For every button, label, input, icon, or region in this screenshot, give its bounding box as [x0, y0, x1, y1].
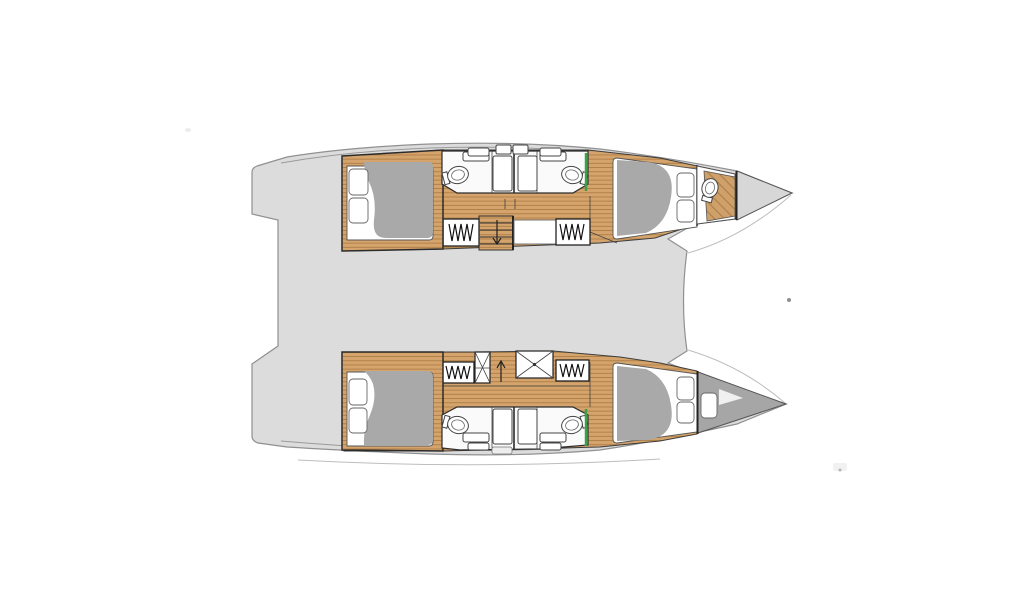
berth-pillow: [701, 393, 717, 418]
vanity-locker: [514, 220, 557, 244]
catamaran-floorplan: [0, 0, 1024, 600]
pillow: [349, 198, 368, 223]
forepeak-head: [697, 166, 735, 224]
pillow: [677, 377, 694, 400]
bathrooms: [441, 145, 588, 193]
pillow: [677, 402, 694, 423]
sink-counter: [463, 433, 489, 442]
bow-locker: [737, 171, 792, 220]
hull-window: [540, 443, 561, 450]
forward-cabin: [613, 363, 697, 443]
pillow: [677, 173, 694, 197]
duvet: [364, 371, 433, 445]
transom-step: [492, 447, 512, 454]
deck-hatch-large: [516, 351, 553, 378]
lower-hull: [342, 351, 786, 454]
duvet: [364, 162, 433, 238]
pillow: [349, 408, 367, 433]
aft-cabin: [342, 352, 443, 451]
aft-cabin: [342, 150, 443, 251]
hull-window: [468, 148, 489, 156]
scan-smudge: [833, 463, 847, 472]
waterline-curve: [298, 459, 660, 465]
shower-stall: [493, 156, 512, 191]
hull-window: [540, 148, 561, 156]
shower-stall: [518, 156, 537, 191]
scan-smudge: [185, 128, 191, 132]
roof-hatch: [496, 145, 511, 154]
forepeak-berth: [698, 371, 787, 434]
deck-hatch-narrow: [475, 352, 490, 383]
forward-cabin: [613, 158, 697, 239]
wardrobe-forward: [556, 360, 589, 381]
wardrobe-forward: [556, 219, 590, 245]
pillow: [677, 200, 694, 222]
deck-dot: [787, 298, 791, 302]
shower-stall: [493, 409, 512, 444]
wardrobe-aft: [442, 362, 474, 383]
wardrobe-aft: [443, 219, 479, 246]
pillow: [349, 379, 367, 405]
upper-hull: [342, 145, 792, 251]
bathrooms: [441, 407, 588, 454]
floorplan-canvas: [0, 0, 1024, 600]
hull-window: [468, 443, 489, 450]
shower-stall: [518, 409, 537, 444]
roof-hatch: [513, 145, 528, 154]
pillow: [349, 169, 368, 195]
sink-counter: [540, 433, 566, 442]
